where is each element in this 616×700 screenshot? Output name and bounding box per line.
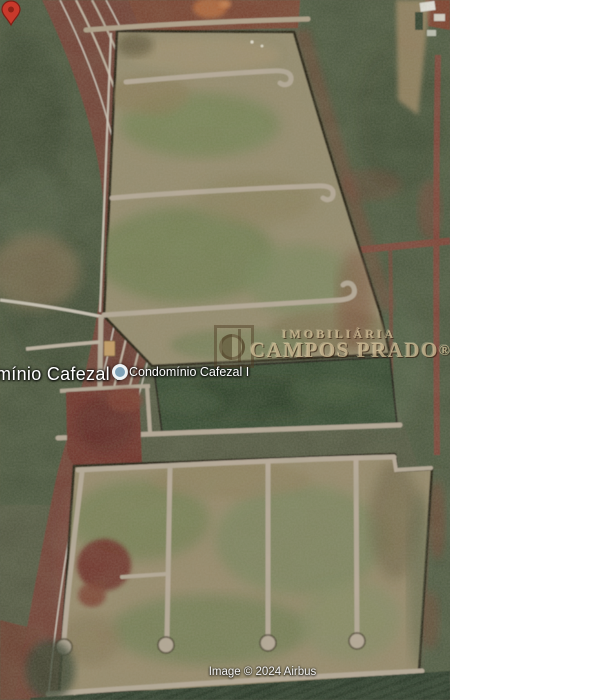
map-attribution: Image © 2024 Airbus	[160, 666, 365, 678]
logo-circle	[219, 334, 245, 360]
screenshot-canvas: IMOBILIÁRIA CAMPOS PRADO® mínio Cafezal …	[0, 0, 616, 700]
placemark-dot-icon[interactable]	[112, 364, 128, 380]
place-label-large: mínio Cafezal I	[0, 364, 121, 385]
watermark-line2-text: CAMPOS PRADO	[250, 338, 439, 362]
watermark-line2: CAMPOS PRADO®	[250, 338, 450, 363]
place-pin-icon[interactable]	[0, 0, 22, 27]
satellite-map-viewport[interactable]: IMOBILIÁRIA CAMPOS PRADO® mínio Cafezal …	[0, 0, 450, 700]
logo-bar	[238, 329, 241, 362]
watermark-registered-mark: ®	[439, 343, 450, 359]
company-logo-icon	[214, 325, 254, 368]
placemark-label[interactable]: Condomínio Cafezal I	[129, 365, 249, 379]
